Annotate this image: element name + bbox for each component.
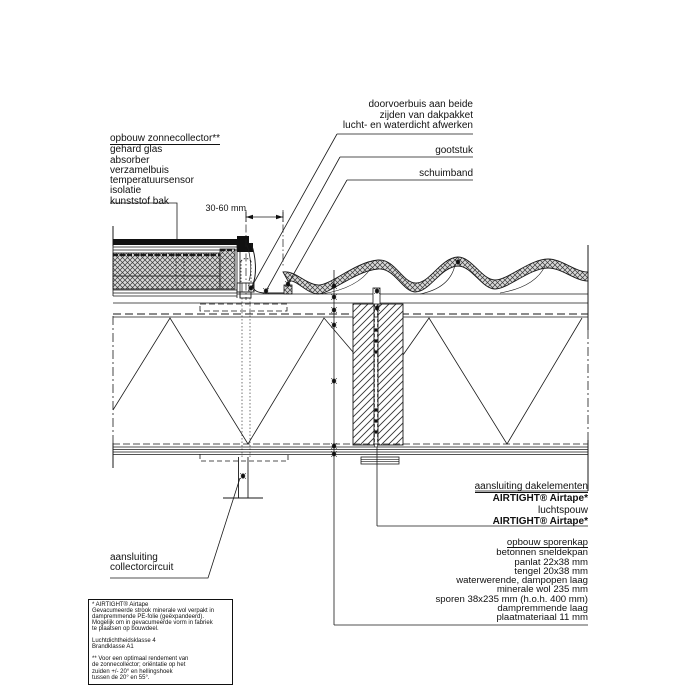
doorvoerbuis-line: lucht- en waterdicht afwerken <box>343 121 473 132</box>
sneldekpan-tile <box>283 257 588 294</box>
sporenkap-item: plaatmateriaal 11 mm <box>435 613 588 622</box>
luchtspouw-label: luchtspouw <box>475 505 588 516</box>
footnote-line: tussen de 20° en 55°. <box>92 675 229 681</box>
collectorcircuit-label: aansluiting collectorcircuit <box>110 553 173 574</box>
sporenkap-label-block: opbouw sporenkap betonnen sneldekpan pan… <box>435 538 588 623</box>
schuimband-label: schuimband <box>419 169 473 179</box>
collector-label-block: opbouw zonnecollector** gehard glas abso… <box>110 134 220 207</box>
zonnecollector-insulation <box>113 249 235 289</box>
airtape-bottom-label: AIRTIGHT® Airtape* <box>475 516 588 527</box>
minerale-wol-truss <box>113 318 582 444</box>
dimension-label: 30-60 mm <box>146 203 246 213</box>
roof-layers <box>113 294 588 317</box>
ceiling-layers <box>113 444 588 464</box>
roof-detail-drawing-page: opbouw zonnecollector** gehard glas abso… <box>0 0 700 700</box>
junction-label-block: aansluiting dakelementen AIRTIGHT® Airta… <box>475 481 588 527</box>
collectorcircuit-line: collectorcircuit <box>110 563 173 573</box>
gootstuk-label: gootstuk <box>435 146 473 156</box>
doorvoerbuis-label: doorvoerbuis aan beide zijden van dakpak… <box>343 100 473 132</box>
doorvoerbuis-line: doorvoerbuis aan beide <box>343 100 473 111</box>
junction-title: aansluiting dakelementen <box>475 481 588 493</box>
airtape-top-label: AIRTIGHT® Airtape* <box>475 493 588 504</box>
footnote-box: * AIRTIGHT® Airtape Gevacumeerde strook … <box>88 599 233 685</box>
dimension-line <box>246 212 283 222</box>
